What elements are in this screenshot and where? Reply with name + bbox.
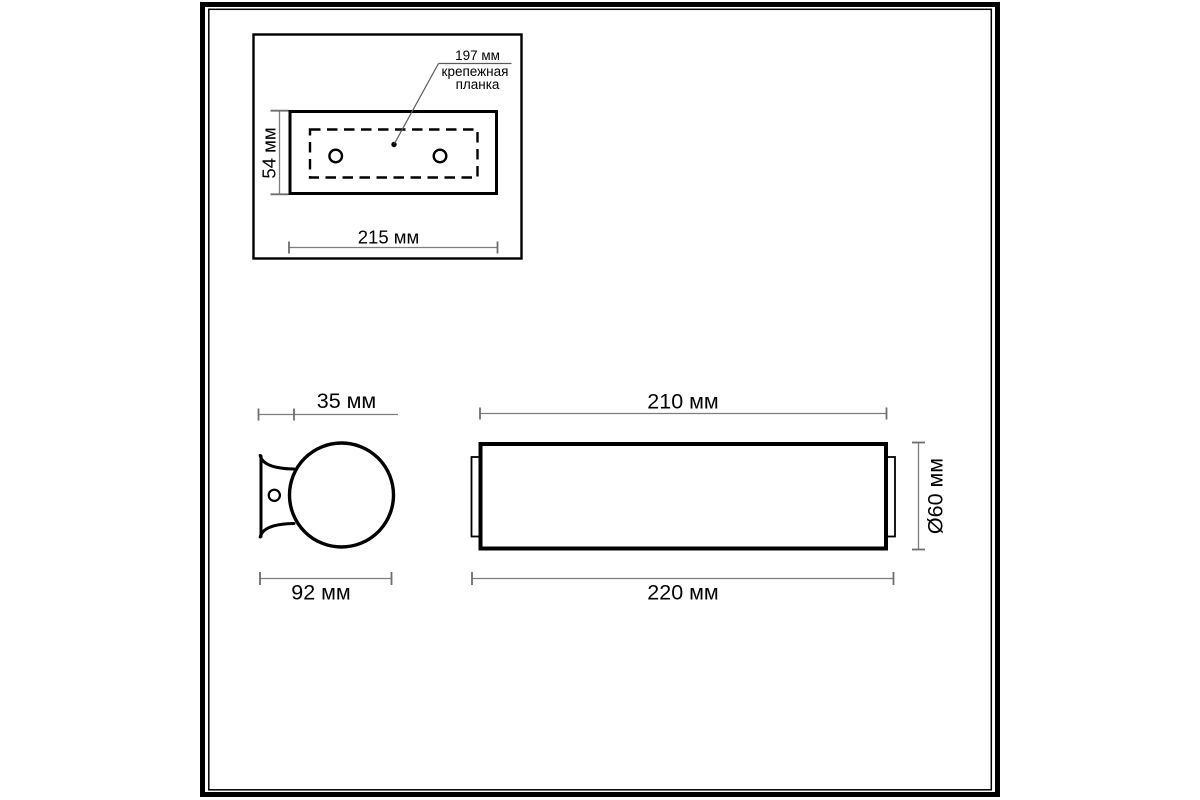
mounting-bar-dashed-outline [310,130,478,178]
overall-depth-dimension: 92 мм [260,572,392,605]
diameter-label: Ø60 мм [924,458,948,534]
plate-height-label: 54 мм [259,127,280,178]
lamp-front-view: 210 мм Ø60 мм 220 мм [472,390,948,605]
plate-width-dimension: 215 мм [289,227,498,254]
overall-depth-label: 92 мм [291,581,350,605]
overall-length-dimension: 220 мм [472,572,894,605]
bracket-screw-hole [269,490,280,501]
leader-line [395,64,439,144]
bar-length-label: 197 мм [455,48,500,63]
bracket-depth-dimension: 35 мм [259,389,399,421]
mounting-plate-outline [290,112,497,194]
drawing-page: 197 мм крепежная планка 54 мм 215 мм [0,0,1200,800]
mounting-plate-inset: 197 мм крепежная планка 54 мм 215 мм [254,35,522,259]
tube-body-outline [481,444,887,549]
diameter-dimension: Ø60 мм [912,443,948,550]
plate-height-dimension: 54 мм [259,111,289,195]
glass-length-dimension: 210 мм [480,390,887,420]
plate-width-label: 215 мм [358,227,419,248]
overall-length-label: 220 мм [647,581,718,605]
glass-globe-outline [290,443,394,547]
technical-drawing: 197 мм крепежная планка 54 мм 215 мм [0,0,1200,800]
glass-length-label: 210 мм [647,390,718,414]
screw-hole-left [329,150,342,163]
leader-dot [391,142,396,147]
lamp-side-view: 35 мм 92 мм [259,389,399,605]
screw-hole-right [434,150,447,163]
bar-caption-line2: планка [456,77,500,92]
bracket-depth-label: 35 мм [317,389,376,413]
